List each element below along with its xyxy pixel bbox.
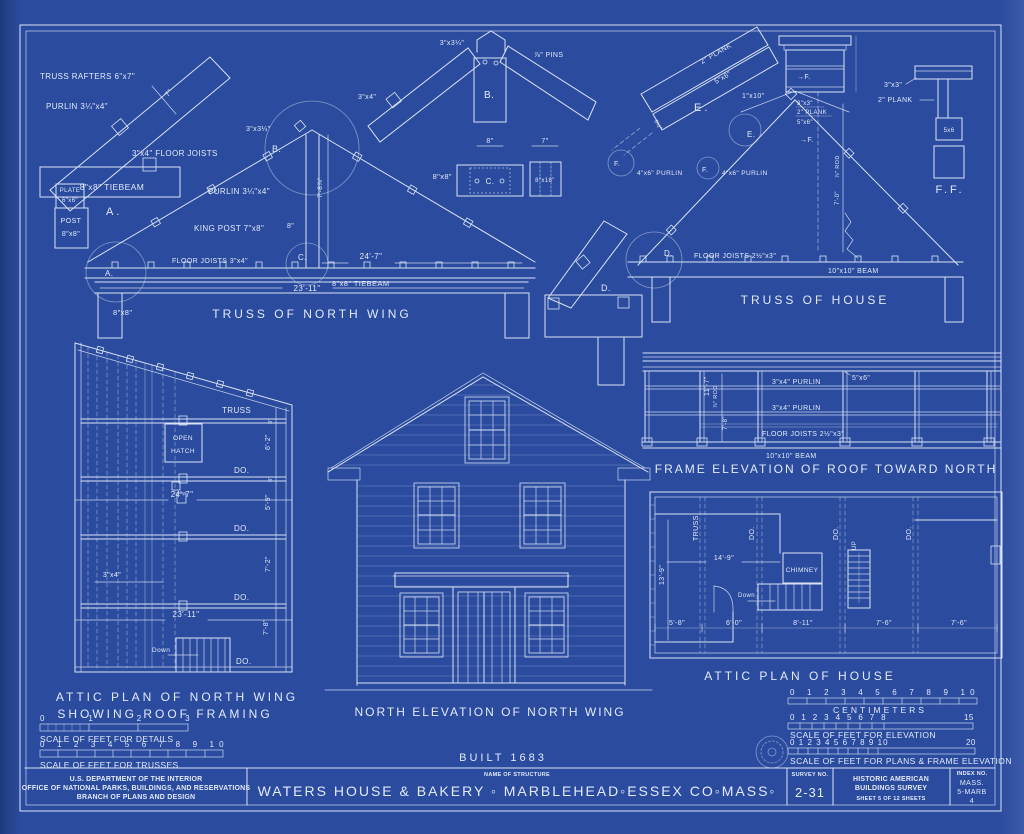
label-kingpost-8: 8" <box>287 223 294 230</box>
circle-label-f2: F. <box>702 167 708 174</box>
label-a: A. <box>106 206 122 218</box>
circle-label-b: B. <box>272 144 281 154</box>
label-frame-beam: 10"x10" BEAM <box>766 453 817 460</box>
label-post-dim: 8"x8" <box>113 308 132 317</box>
drawing-attic-plan-north-wing: TRUSS OPEN HATCH DO. DO. DO. DO. 6'-2" 5… <box>56 343 298 721</box>
label-apex-5x6: 5"x6" <box>797 120 813 126</box>
name-of-structure-label: NAME OF STRUCTURE <box>484 772 550 778</box>
circle-label-e: E. <box>747 130 755 139</box>
label-pins: ⅞" PINS <box>534 52 563 59</box>
circle-label-c: C. <box>298 253 307 262</box>
label-apex-3x3: 3"x3" <box>797 101 813 107</box>
drawing-truss-of-house: 2" PLANK 5"x6" 6½" E. F. 4"x6" PURLIN <box>608 27 963 322</box>
circle-label-a: A. <box>105 269 113 278</box>
label-ff-3x3: 3"x3" <box>884 82 902 89</box>
dim-6-2: 6'-2" <box>265 434 272 450</box>
label-ah-down: Down <box>738 593 755 599</box>
dim-attic-23-11: 23'-11" <box>172 610 199 619</box>
scale-plans-label: SCALE OF FEET FOR PLANS & FRAME ELEVATIO… <box>790 756 1012 766</box>
label-1x10: 1"x10" <box>742 93 765 100</box>
label-plate: PLATE <box>60 188 81 194</box>
scale-elev-end: 15 <box>964 713 974 722</box>
dim-7-6-b: 7'-6" <box>951 620 967 627</box>
label-e-5x6: 5"x6" <box>714 70 733 85</box>
label-house-joists: FLOOR JOISTS 2½"x3" <box>694 252 776 260</box>
dim-3x4: 3"x4" <box>103 572 121 579</box>
label-ff: F.F. <box>935 184 964 196</box>
dim-11-7: 11'-7" <box>704 376 711 396</box>
label-ah-do-1: DO. <box>749 526 756 540</box>
sheet-number-line: SHEET 5 OF 12 SHEETS <box>856 796 925 802</box>
label-plate-size: 6"x6" <box>62 198 78 204</box>
habs-line-2: BUILDINGS SURVEY <box>855 785 927 792</box>
label-do-3: DO. <box>234 593 249 602</box>
caption-attic-plan-house: ATTIC PLAN OF HOUSE <box>704 669 895 683</box>
label-ff-5x6: 5x6 <box>944 128 955 134</box>
survey-seal <box>756 736 788 768</box>
label-post-size: 8"x8" <box>62 231 80 238</box>
label-e: E. <box>694 102 710 114</box>
drawing-detail-ff: 3"x3" 2" PLANK 5x6 F.F. <box>878 66 972 196</box>
label-hatch: HATCH <box>171 448 195 455</box>
label-frame-5x6: 5"x6" <box>852 375 870 382</box>
caption-truss-of-house: TRUSS OF HOUSE <box>741 293 890 307</box>
caption-frame-elevation: FRAME ELEVATION OF ROOF TOWARD NORTH <box>655 462 997 476</box>
scale-cm-ticks: 0 1 2 3 4 5 6 7 8 9 10 <box>790 688 975 697</box>
label-b: B. <box>484 90 494 101</box>
label-kingpost: KING POST 7"x8" <box>194 224 264 233</box>
built-date: BUILT 1683 <box>459 752 547 764</box>
circle-label-d: D. <box>664 249 673 258</box>
survey-no-label: SURVEY NO. <box>792 772 829 778</box>
drawing-north-elevation: NORTH ELEVATION OF NORTH WING <box>325 373 652 719</box>
label-ah-truss: TRUSS <box>693 515 700 541</box>
label-floor-joists-top: 3"x4" FLOOR JOISTS <box>132 149 218 158</box>
survey-no: 2-31 <box>795 785 825 800</box>
label-apex-plank: 2" PLANK <box>797 110 827 116</box>
label-b-rafter-size: 3"x4" <box>358 94 376 101</box>
ref-f-bottom: →F. <box>800 137 814 144</box>
dim-5-9: 5'-9" <box>265 494 272 510</box>
dim-7-2: 7'-2" <box>265 556 272 572</box>
label-purlin-left: 4"x6" PURLIN <box>637 170 683 177</box>
dim-7-8: 7'-8" <box>263 619 270 635</box>
dim-5-8: 5'-8" <box>669 620 685 627</box>
label-frame-purlin-1: 3"x4" PURLIN <box>772 379 821 386</box>
index-line-3: 4 <box>970 798 974 805</box>
dim-23-11: 23'-11" <box>293 284 320 293</box>
dim-13-9: 13'-9" <box>659 565 666 585</box>
label-tiebeam-2: 8"x8" TIEBEAM <box>332 279 390 288</box>
label-ah-do-3: DO. <box>906 526 913 540</box>
label-attic-truss: TRUSS <box>222 406 251 415</box>
label-down: Down <box>152 647 170 654</box>
label-ah-do-2: DO. <box>833 526 840 540</box>
label-e-plank: 2" PLANK <box>700 42 733 65</box>
label-c: C. <box>486 177 495 186</box>
dim-attic-24-7: 24'-7" <box>171 490 194 499</box>
dim-14-9: 14'-9" <box>714 555 734 562</box>
habs-line-1: HISTORIC AMERICAN <box>853 776 929 783</box>
label-b-apex-size: 3"x3¼" <box>440 40 465 47</box>
agency-line-3: BRANCH OF PLANS AND DESIGN <box>77 794 196 801</box>
dim-8-11: 8'-11" <box>793 620 813 627</box>
scale-plans-ticks: 0 1 2 3 4 5 6 7 8 9 10 <box>790 738 888 747</box>
index-line-1: MASS. <box>960 780 984 787</box>
drawing-detail-b: 3"x3¼" ⅞" PINS 3"x4" B. 8" 7" C. 8"x8" 8… <box>358 31 596 196</box>
label-ah-up: UP <box>852 541 858 550</box>
scale-bars-right: 0 1 2 3 4 5 6 7 8 9 10 CENTIMETERS 0 1 2… <box>788 688 1012 766</box>
label-chimney: CHIMNEY <box>786 567 819 574</box>
dim-b-7: 7" <box>541 138 548 145</box>
label-truss-rafters: TRUSS RAFTERS 6"x7" <box>40 72 135 81</box>
agency-line-1: U.S. DEPARTMENT OF THE INTERIOR <box>70 776 203 783</box>
dim-8a: 8" <box>268 418 274 424</box>
label-rod: ⅞" ROD <box>835 155 841 178</box>
label-kingpost-height: 7'-8⅞" <box>317 177 324 198</box>
ref-f-top: →F. <box>797 74 811 81</box>
dim-b-8: 8" <box>486 138 493 145</box>
structure-name: WATERS HOUSE & BAKERY ◦ MARBLEHEAD◦ESSEX… <box>258 783 777 799</box>
drawing-truss-of-north-wing: TRUSS RAFTERS 6"x7" PURLIN 3¼"x4" 7" 3"x… <box>40 57 535 338</box>
label-frame-rod: ⅞" ROD <box>713 385 719 408</box>
circle-label-f1: F. <box>614 161 620 168</box>
caption-attic-nw-1: ATTIC PLAN OF NORTH WING <box>56 690 298 704</box>
dim-8b: 8" <box>268 476 274 482</box>
label-frame-purlin-2: 3"x4" PURLIN <box>772 405 821 412</box>
index-no-label: INDEX NO. <box>957 771 988 777</box>
label-8x18: 8"x18" <box>535 178 555 184</box>
agency-line-2: OFFICE OF NATIONAL PARKS, BUILDINGS, AND… <box>22 785 251 792</box>
drawing-frame-elevation: 11'-7" ⅞" ROD 7'-8" 5"x6" 3"x4" PURLIN 3… <box>642 353 1001 476</box>
label-floor-joists-2: FLOOR JOISTS 3"x4" <box>172 258 248 265</box>
label-do-1: DO. <box>234 466 249 475</box>
label-c-dim: 8"x8" <box>433 172 452 181</box>
caption-north-elevation: NORTH ELEVATION OF NORTH WING <box>354 705 625 719</box>
label-rod-dim: 7'-0" <box>835 191 841 205</box>
dim-6-0: 6'-0" <box>726 620 742 627</box>
caption-truss-north-wing: TRUSS OF NORTH WING <box>212 307 411 321</box>
dim-frame-7-8: 7'-8" <box>723 416 729 430</box>
label-do-2: DO. <box>234 524 249 533</box>
label-purlin-top: PURLIN 3¼"x4" <box>46 102 108 111</box>
label-open: OPEN <box>173 435 193 442</box>
label-purlin-2: PURLIN 3¼"x4" <box>208 187 270 196</box>
label-post: POST <box>61 218 82 225</box>
label-frame-joists: FLOOR JOISTS 2½"x3" <box>762 430 844 438</box>
label-dim-7in: 7" <box>164 88 174 98</box>
dim-24-7: 24'-7" <box>360 252 383 261</box>
drawing-detail-d: D. <box>545 221 642 385</box>
blueprint-sheet: TRUSS RAFTERS 6"x7" PURLIN 3¼"x4" 7" 3"x… <box>0 0 1024 834</box>
title-block: U.S. DEPARTMENT OF THE INTERIOR OFFICE O… <box>22 768 995 805</box>
scale-bars-left: 0 1 2 3 SCALE OF FEET FOR DETAILS 0 1 2 … <box>40 714 224 770</box>
dim-7-6-a: 7'-6" <box>876 620 892 627</box>
index-line-2: 5-MARB <box>957 789 986 796</box>
label-apex-size: 3"x3¼" <box>246 126 271 133</box>
label-do-4: DO. <box>236 657 251 666</box>
scale-elev-ticks: 0 1 2 3 4 5 6 7 8 <box>790 713 886 722</box>
label-tiebeam-1: 8"x8" TIEBEAM <box>80 182 144 192</box>
label-house-beam: 10"x10" BEAM <box>828 268 879 275</box>
label-ff-plank: 2" PLANK <box>878 97 912 104</box>
label-detail-d: D. <box>601 283 611 293</box>
label-purlin-right: 4"x6" PURLIN <box>722 170 768 177</box>
drawing-attic-plan-house: TRUSS DO. DO. DO. CHIMNEY Down UP 14'-9"… <box>650 492 1002 683</box>
scale-plans-end: 20 <box>966 738 976 747</box>
